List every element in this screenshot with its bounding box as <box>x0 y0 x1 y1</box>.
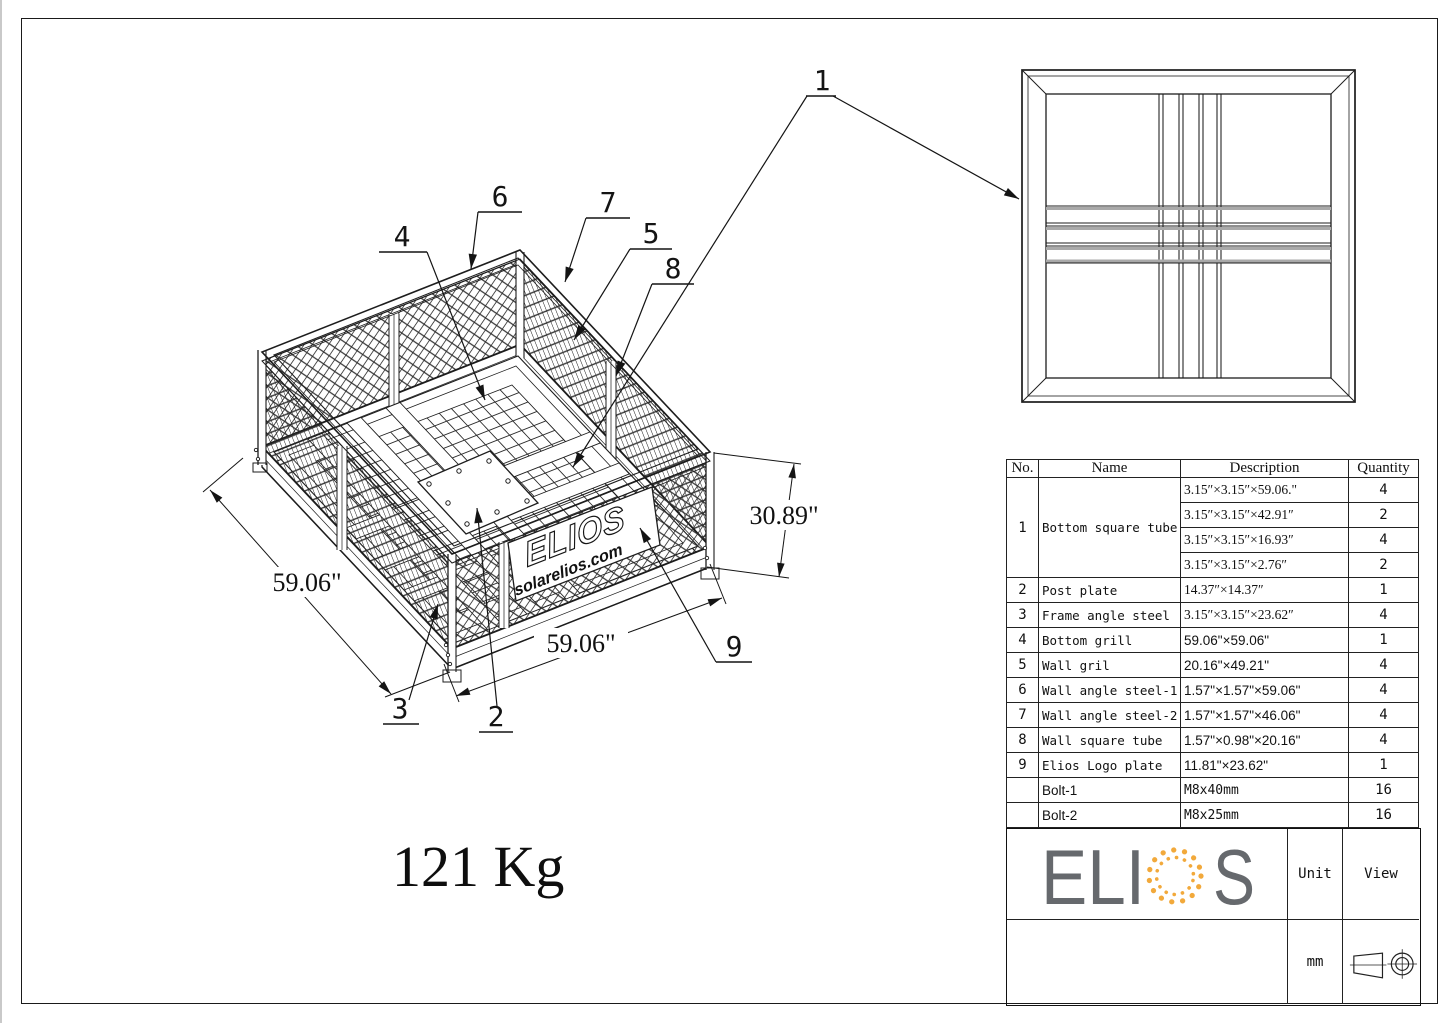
cell-no: 7 <box>1007 703 1039 728</box>
cell-no: 6 <box>1007 678 1039 703</box>
cell-name: Bottom square tube <box>1039 478 1181 578</box>
brand-cell: ELI S <box>1007 829 1287 919</box>
table-row: 2 Post plate 14.37″×14.37″ 1 <box>1007 578 1419 603</box>
table-row: Bolt-2 M8x25mm 16 <box>1007 803 1419 828</box>
cell-desc: 3.15″×3.15″×2.76″ <box>1181 553 1349 578</box>
table-row: 5 Wall gril 20.16"×49.21" 4 <box>1007 653 1419 678</box>
wall-square-tube-front-left <box>337 446 347 550</box>
table-row: Bolt-1 M8x40mm 16 <box>1007 778 1419 803</box>
brand-letter-s: S <box>1213 833 1255 918</box>
table-row: 1 Bottom square tube 3.15″×3.15″×59.06."… <box>1007 478 1419 503</box>
cell-name: Wall square tube <box>1039 728 1181 753</box>
cell-name: Frame angle steel <box>1039 603 1181 628</box>
table-row: 6 Wall angle steel-1 1.57"×1.57"×59.06" … <box>1007 678 1419 703</box>
cell-no: 4 <box>1007 628 1039 653</box>
cell-desc: 14.37″×14.37″ <box>1181 578 1349 603</box>
cell-qty: 1 <box>1349 753 1419 778</box>
cell-qty: 4 <box>1349 728 1419 753</box>
cell-name: Post plate <box>1039 578 1181 603</box>
dim-height: 30.89" <box>749 501 818 530</box>
wall-square-tube-back-left <box>389 314 399 418</box>
cell-qty: 4 <box>1349 653 1419 678</box>
cell-name: Wall angle steel-2 <box>1039 703 1181 728</box>
cell-qty: 4 <box>1349 478 1419 503</box>
dim-left-width: 59.06" <box>272 568 341 597</box>
cell-qty: 4 <box>1349 603 1419 628</box>
cell-name: Bottom grill <box>1039 628 1181 653</box>
detail-vertical-tubes <box>1159 94 1221 378</box>
third-angle-projection-icon <box>1343 920 1419 1005</box>
cell-desc: 3.15″×3.15″×59.06." <box>1181 478 1349 503</box>
corner-post-north <box>516 252 524 358</box>
cell-qty: 16 <box>1349 778 1419 803</box>
callout-3: 3 <box>392 692 409 725</box>
cell-no <box>1007 778 1039 803</box>
cell-desc: M8x25mm <box>1181 803 1349 828</box>
cell-no: 1 <box>1007 478 1039 578</box>
cell-qty: 2 <box>1349 553 1419 578</box>
cell-desc: 11.81"×23.62" <box>1181 753 1349 778</box>
cell-desc: 20.16"×49.21" <box>1181 653 1349 678</box>
cell-desc: M8x40mm <box>1181 778 1349 803</box>
cell-desc: 3.15″×3.15″×42.91″ <box>1181 503 1349 528</box>
unit-value-cell: mm <box>1287 919 1342 1004</box>
cell-name: Wall gril <box>1039 653 1181 678</box>
cell-qty: 4 <box>1349 528 1419 553</box>
dim-front-width: 59.06" <box>546 629 615 658</box>
cell-desc: 3.15″×3.15″×23.62″ <box>1181 603 1349 628</box>
cell-desc: 1.57"×1.57"×46.06" <box>1181 703 1349 728</box>
brand-letters-eli: ELI <box>1041 833 1145 918</box>
callout-5: 5 <box>643 217 660 250</box>
cell-desc: 59.06"×59.06" <box>1181 628 1349 653</box>
callout-8: 8 <box>665 252 682 285</box>
cell-qty: 4 <box>1349 678 1419 703</box>
table-row: 4 Bottom grill 59.06"×59.06" 1 <box>1007 628 1419 653</box>
cell-no: 2 <box>1007 578 1039 603</box>
cell-qty: 2 <box>1349 503 1419 528</box>
cell-desc: 3.15″×3.15″×16.93″ <box>1181 528 1349 553</box>
elios-brand-logo: ELI S <box>1013 830 1281 918</box>
cell-qty: 4 <box>1349 703 1419 728</box>
parts-table: No. Name Description Quantity 1 Bottom s… <box>1006 459 1419 828</box>
cell-name: Bolt-2 <box>1039 803 1181 828</box>
cell-name: Elios Logo plate <box>1039 753 1181 778</box>
sun-dot-ring-inner-icon <box>1153 854 1198 899</box>
wall-square-tube-front-right <box>499 542 509 628</box>
table-row: 9 Elios Logo plate 11.81"×23.62" 1 <box>1007 753 1419 778</box>
callout-7: 7 <box>600 186 617 219</box>
unit-header-cell: Unit <box>1287 829 1342 919</box>
cell-no: 3 <box>1007 603 1039 628</box>
cell-name: Wall angle steel-1 <box>1039 678 1181 703</box>
callout-9: 9 <box>726 630 743 663</box>
cell-desc: 1.57"×1.57"×59.06" <box>1181 678 1349 703</box>
callout-6: 6 <box>492 180 509 213</box>
cell-name: Bolt-1 <box>1039 778 1181 803</box>
table-header-row: No. Name Description Quantity <box>1007 460 1419 478</box>
cell-qty: 1 <box>1349 628 1419 653</box>
weight-label: 121 Kg <box>392 834 564 899</box>
header-no: No. <box>1007 460 1039 478</box>
detail-horizontal-tubes <box>1046 206 1331 263</box>
cell-qty: 16 <box>1349 803 1419 828</box>
header-quantity: Quantity <box>1349 460 1419 478</box>
view-header-cell: View <box>1342 829 1419 919</box>
cell-no: 5 <box>1007 653 1039 678</box>
engineering-drawing-sheet: { "drawing": { "weight_label": "121 Kg",… <box>0 0 1445 1023</box>
header-name: Name <box>1039 460 1181 478</box>
cell-no: 9 <box>1007 753 1039 778</box>
callout-2: 2 <box>488 700 505 733</box>
corner-post-west <box>253 350 267 472</box>
cell-no: 8 <box>1007 728 1039 753</box>
cell-qty: 1 <box>1349 578 1419 603</box>
bottom-frame-detail-view <box>1022 70 1355 402</box>
table-row: 7 Wall angle steel-2 1.57"×1.57"×46.06" … <box>1007 703 1419 728</box>
table-row: 3 Frame angle steel 3.15″×3.15″×23.62″ 4 <box>1007 603 1419 628</box>
title-block-empty-cell <box>1007 919 1287 1004</box>
title-block: ELI S Unit View mm <box>1006 828 1421 1006</box>
cell-desc: 1.57"×0.98"×20.16" <box>1181 728 1349 753</box>
header-description: Description <box>1181 460 1349 478</box>
callout-1: 1 <box>814 64 831 97</box>
table-row: 8 Wall square tube 1.57"×0.98"×20.16" 4 <box>1007 728 1419 753</box>
cell-no <box>1007 803 1039 828</box>
callout-4: 4 <box>394 220 411 253</box>
projection-symbol-cell <box>1342 919 1419 1004</box>
